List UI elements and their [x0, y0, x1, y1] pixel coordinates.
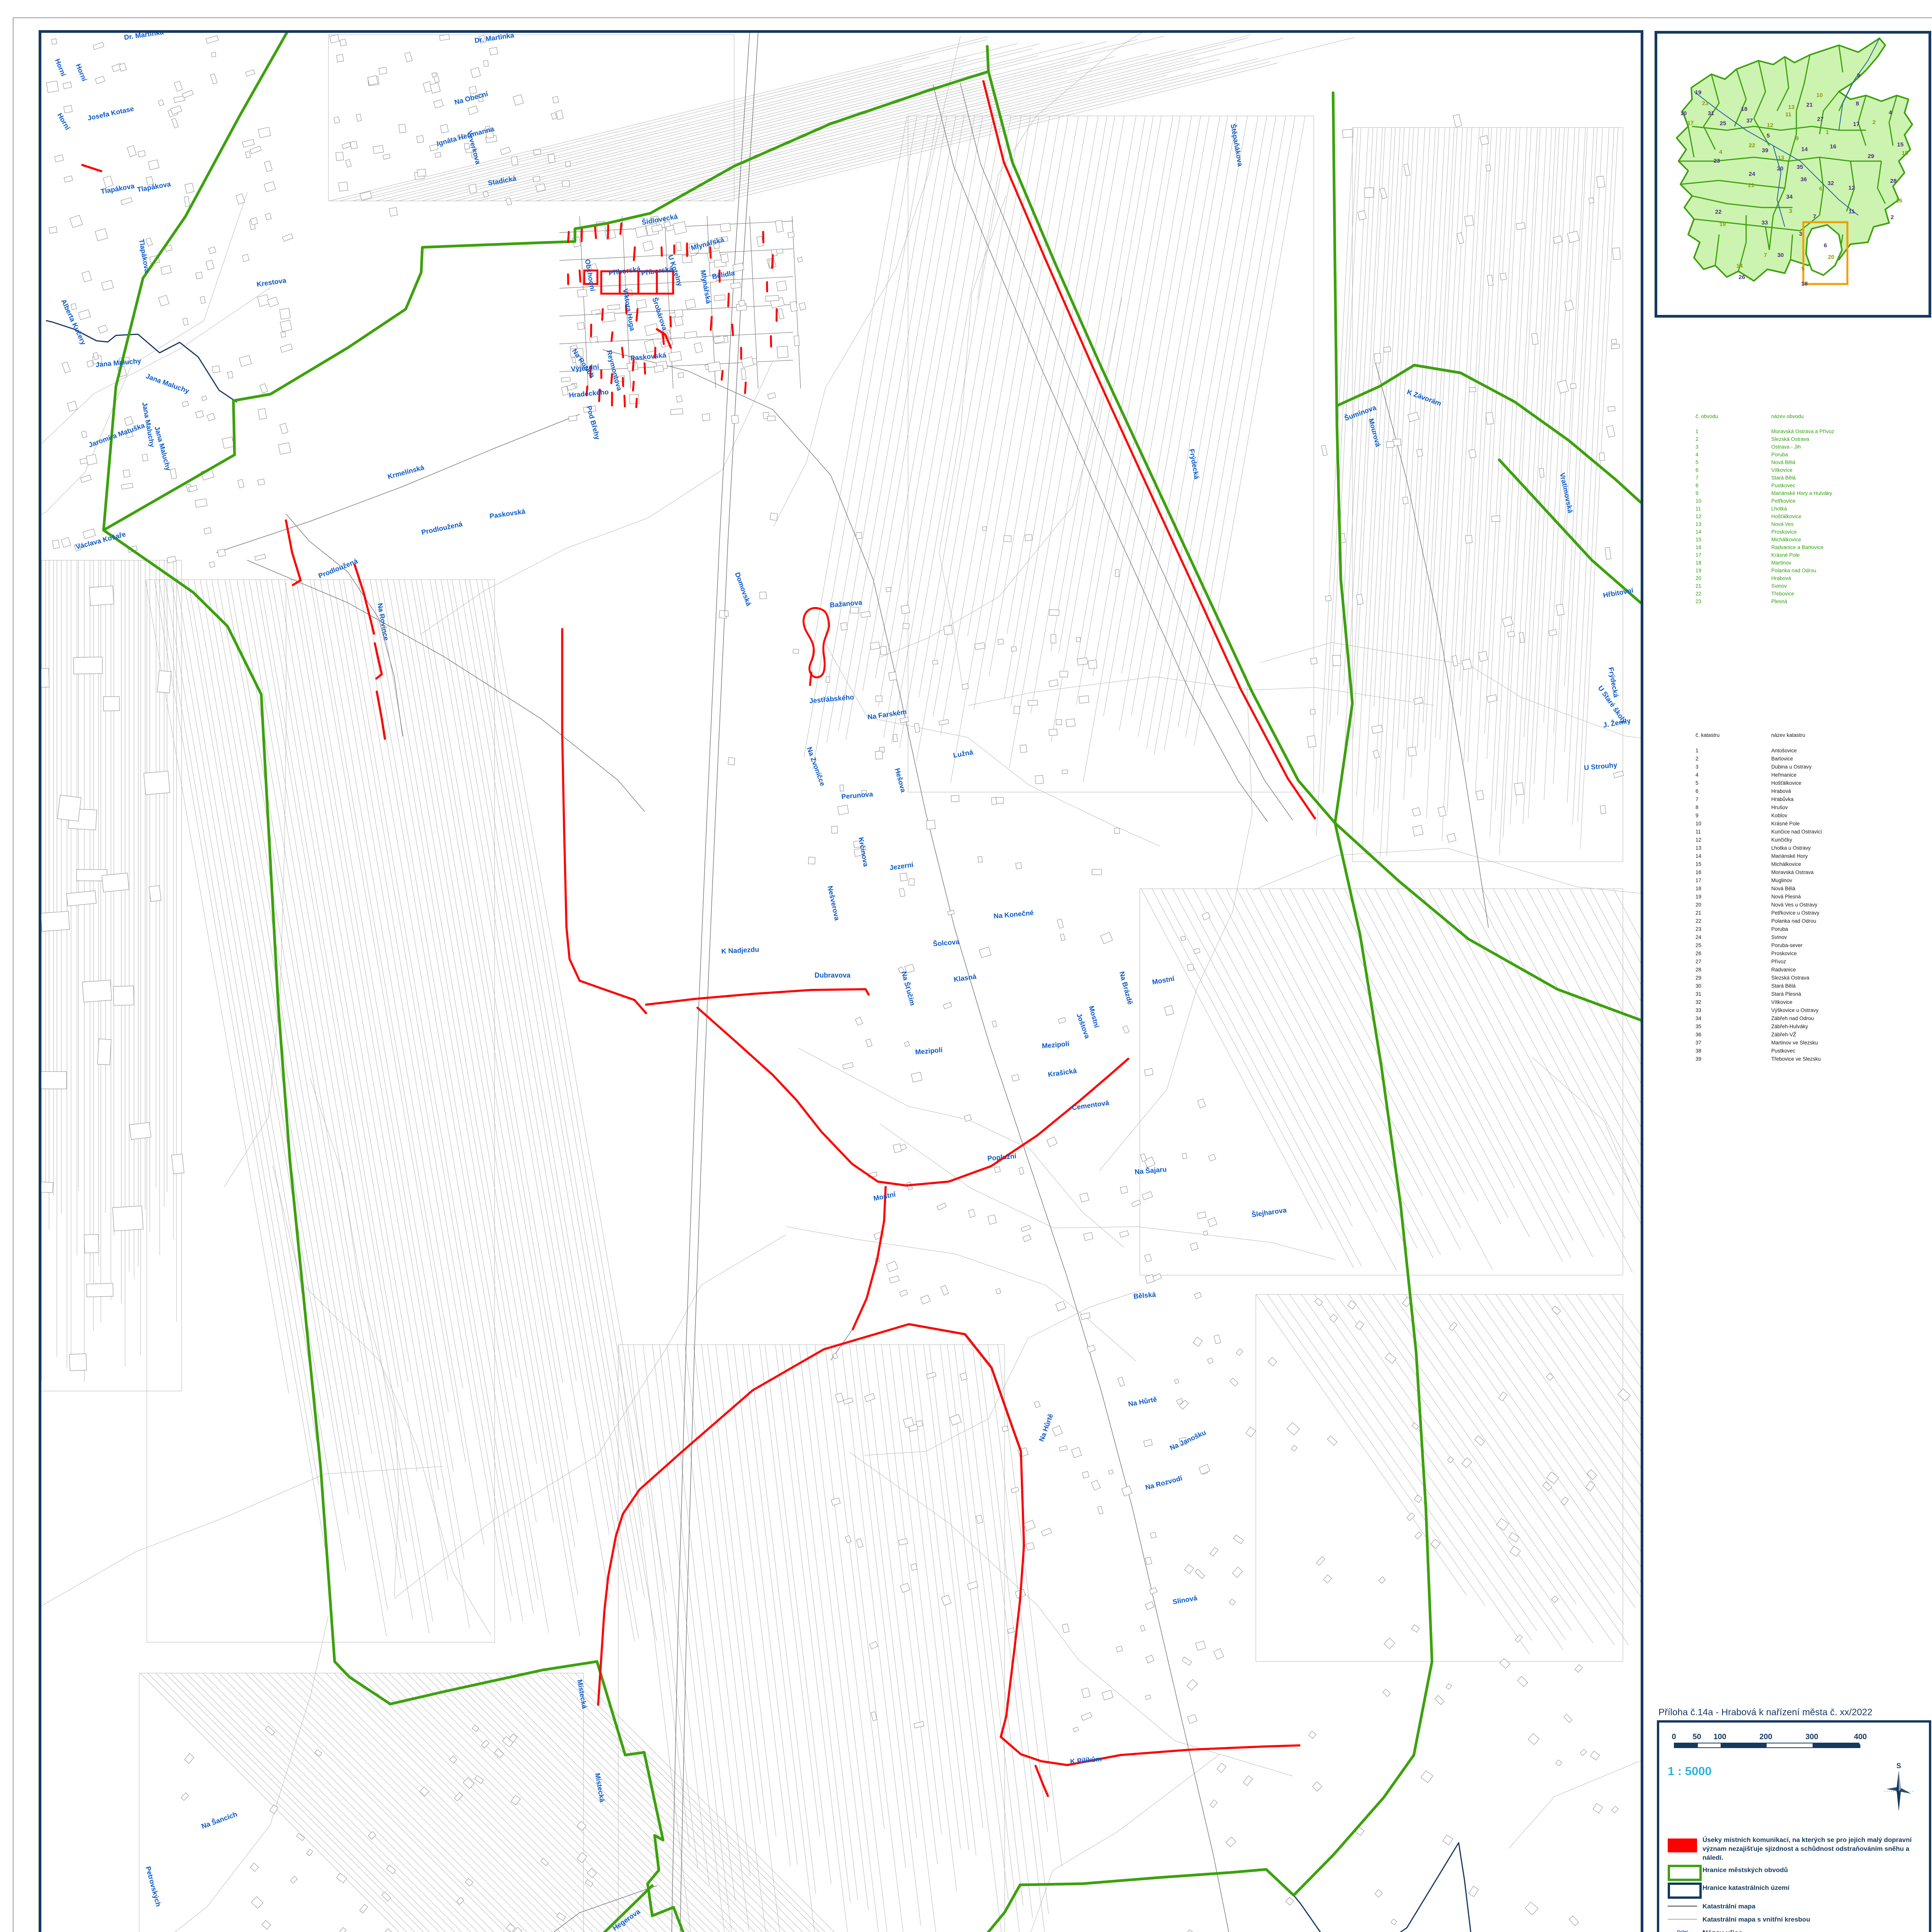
list-item: 22Polanka nad Odrou: [1696, 917, 1822, 925]
inset-district-number: 4: [1719, 149, 1723, 155]
inset-district-number: 17: [1853, 121, 1860, 128]
inset-district-number: 18: [1741, 106, 1748, 112]
street-label: Jana Maluchy: [95, 357, 141, 369]
legend-black-line: [1668, 1906, 1697, 1906]
list-item: 39Třebovice ve Slezsku: [1696, 1055, 1822, 1063]
list-item: 30Stará Bělá: [1696, 982, 1822, 990]
street-label: Prodloužená: [421, 520, 464, 536]
legend-label: Katastrální mapa s vnitřní kresbou: [1702, 1915, 1919, 1924]
inset-district-number: 17: [1687, 120, 1694, 126]
list-item: 19Nová Plesná: [1696, 893, 1822, 901]
list-item: 8Hrušov: [1696, 803, 1822, 811]
list-item: 12Kunčičky: [1696, 836, 1822, 844]
street-label: J. Žemly: [1602, 716, 1631, 729]
list-item: 9Mariánské Hory a Hulváky: [1696, 490, 1834, 497]
list-item: 24Svinov: [1696, 933, 1822, 941]
street-label: Prodloužená: [317, 557, 359, 580]
list-item: 20Hrabová: [1696, 575, 1834, 582]
street-label: Výjezdní: [571, 363, 600, 373]
inset-district-number: 9: [1857, 72, 1860, 79]
street-label: Jana Maluchy: [145, 372, 190, 395]
street-label: Petrovských: [144, 1866, 162, 1908]
legend-item: Úseky místních komunikací, na kterých se…: [1659, 1834, 1926, 1857]
street-label: Příborská: [608, 265, 641, 277]
street-label: Stadická: [487, 174, 517, 187]
list-item: 6Hrabová: [1696, 787, 1822, 795]
street-label: Hešova: [893, 767, 907, 794]
street-label: Mlynářská: [690, 236, 725, 252]
list-item: 15Michálkovice: [1696, 860, 1822, 868]
list-item: 21Petřkovice u Ostravy: [1696, 909, 1822, 917]
sheet-title: Příloha č.14a - Hrabová k nařízení města…: [1658, 1707, 1929, 1718]
street-label: Krestova: [256, 276, 287, 288]
inset-district-number: 21: [1748, 182, 1755, 189]
street-label: Dubravova: [815, 971, 851, 979]
street-label: Paskovská: [630, 351, 667, 362]
list-item: 7Stará Bělá: [1696, 474, 1834, 482]
street-label: Mezipolí: [915, 1046, 943, 1056]
inset-district-number: 33: [1762, 219, 1768, 226]
legend-gray-line: [1668, 1919, 1697, 1920]
list-item: 3Ostrava - Jih: [1696, 443, 1834, 451]
main-map: Dr. MartinkaDr. MartinkaHorníHorníHorníJ…: [39, 30, 1643, 1932]
north-arrow-icon: S: [1883, 1761, 1914, 1811]
list-item: 10Krásné Pole: [1696, 820, 1822, 828]
north-label: S: [1896, 1762, 1901, 1770]
inset-district-number: 34: [1786, 194, 1793, 200]
inset-district-number: 12: [1849, 185, 1855, 191]
street-label: Joštova: [1075, 1012, 1091, 1040]
inset-district-number: 21: [1806, 102, 1813, 108]
inset-district-number: 5: [1801, 265, 1804, 272]
street-label: Paskovská: [489, 507, 526, 520]
list-item: 17Krásné Pole: [1696, 551, 1834, 559]
street-label: Krmelínská: [387, 463, 425, 481]
list-item: 20Nová Ves u Ostravy: [1696, 901, 1822, 909]
inset-district-number: 13: [1778, 155, 1784, 161]
legend-label: Hranice katastrálních území: [1702, 1883, 1919, 1892]
list-item: 2Bartovice: [1696, 755, 1822, 763]
street-label: Na Šťučím: [900, 971, 917, 1007]
street-label: Jezerní: [889, 861, 914, 872]
list-item: 7Hrabůvka: [1696, 795, 1822, 803]
inset-district-number: 14: [1801, 146, 1808, 153]
street-label: Dr. Martinka: [124, 33, 165, 41]
street-label: K Pilíkům: [1070, 1755, 1102, 1765]
inset-district-number: 14: [1736, 263, 1743, 269]
list-item: 13Nová Ves: [1696, 520, 1834, 528]
district-list: č. obvodunázev obvodu 1Moravská Ostrava …: [1696, 413, 1834, 605]
street-label: Jestřábského: [809, 693, 854, 705]
inset-district-number: 25: [1720, 120, 1726, 127]
inset-district-number: 22: [1715, 209, 1722, 215]
street-label: K Nadjezdu: [721, 946, 759, 955]
inset-district-number: 11: [1849, 208, 1855, 215]
street-label: Jana Maluchy: [153, 425, 172, 471]
inset-district-number: 20: [1777, 165, 1784, 172]
inset-district-number: 2: [1872, 119, 1876, 126]
street-label: Slínová: [1172, 1594, 1198, 1606]
list-item: 1Moravská Ostrava a Přívoz: [1696, 428, 1834, 435]
map-canvas: Dr. MartinkaDr. MartinkaHorníHorníHorníJ…: [41, 33, 1641, 1932]
street-label: Horní: [53, 58, 68, 78]
list-item: 3Dubina u Ostravy: [1696, 763, 1822, 771]
inset-district-number: 28: [1890, 178, 1897, 184]
street-label: Reymontova: [605, 349, 624, 392]
list-item: 22Třebovice: [1696, 590, 1834, 598]
list-item: 28Radvanice: [1696, 966, 1822, 974]
list-item: 26Proskovice: [1696, 949, 1822, 957]
street-label: Na Hůrtě: [1037, 1413, 1054, 1442]
list-item: 36Zábřeh-VŽ: [1696, 1031, 1822, 1039]
street-label: Bělidla: [711, 269, 736, 281]
list-item: 27Přívoz: [1696, 957, 1822, 966]
scale-bar: 050100200300400 m: [1674, 1733, 1859, 1750]
legend-item: DolníNázev ulice: [1659, 1927, 1926, 1932]
inset-district-number: 19: [1695, 89, 1702, 96]
street-label: Šlejharova: [1251, 1206, 1287, 1219]
street-label: Perunova: [841, 790, 874, 801]
inset-district-number: 16: [1830, 143, 1837, 150]
inset-district-number: 31: [1708, 110, 1714, 117]
street-label: Mezipolí: [1042, 1040, 1070, 1050]
street-label: Na Konečné: [993, 909, 1034, 920]
street-label: Na Zvoničce: [805, 746, 827, 787]
inset-district-number: 35: [1797, 164, 1803, 170]
list-item: 8Pustkovec: [1696, 482, 1834, 490]
inset-district-number: 27: [1817, 116, 1824, 122]
inset-district-number: 3: [1789, 208, 1792, 214]
inset-district-number: 7: [1813, 213, 1816, 220]
list-item: 19Polanka nad Odrou: [1696, 567, 1834, 575]
scalebar-label: 100: [1713, 1733, 1726, 1742]
inset-district-number: 11: [1785, 111, 1791, 118]
cadastre-list: č. katastrunázev katastru 1Antošovice2Ba…: [1696, 731, 1822, 1063]
list-item: 13Lhotka u Ostravy: [1696, 844, 1822, 852]
list-item: 2Slezská Ostrava: [1696, 435, 1834, 443]
inset-district-number: 5: [1767, 133, 1770, 139]
district-list-col2: název obvodu: [1771, 413, 1804, 419]
list-item: 37Martinov ve Slezsku: [1696, 1039, 1822, 1047]
inset-district-number: 3: [1799, 231, 1802, 237]
scalebar-label: 300: [1805, 1733, 1818, 1742]
list-item: 34Zábřeh nad Odrou: [1696, 1014, 1822, 1022]
inset-district-number: 4: [1889, 109, 1892, 116]
street-label: Nešverova: [826, 885, 841, 922]
street-label: Poplužní: [987, 1152, 1017, 1162]
list-item: 16Moravská Ostrava: [1696, 868, 1822, 876]
street-label: Na Šancích: [200, 1810, 238, 1830]
list-item: 15Michálkovice: [1696, 536, 1834, 544]
inset-district-number: 13: [1788, 104, 1795, 111]
legend-label: Hranice městských obvodů: [1702, 1866, 1919, 1874]
list-item: 11Kunčice nad Ostravicí: [1696, 828, 1822, 836]
street-label: Domovská: [733, 571, 753, 607]
inset-district-number: 16: [1896, 197, 1903, 204]
inset-district-number: 37: [1747, 117, 1753, 124]
cadastre-list-col2: název katastru: [1771, 732, 1805, 738]
list-item: 18Martinov: [1696, 559, 1834, 567]
list-item: 17Muglinov: [1696, 876, 1822, 884]
list-item: 14Mariánské Hory: [1696, 852, 1822, 860]
inset-district-number: 6: [1819, 185, 1822, 192]
street-label: K Závorám: [1406, 388, 1442, 408]
street-label: Jaromíra Matuška: [88, 421, 146, 449]
street-label: Mostní: [1151, 975, 1175, 986]
street-label: Na Janošku: [1168, 1429, 1207, 1452]
list-item: 21Svinov: [1696, 582, 1834, 590]
street-label: Klasná: [953, 973, 977, 983]
street-label: Na Hůrtě: [1128, 1395, 1157, 1408]
inset-district-number: 9: [1796, 135, 1799, 142]
legend-navy-box: [1668, 1883, 1702, 1899]
inset-district-number: 32: [1828, 180, 1834, 187]
legend-item: Katastrální mapa: [1659, 1900, 1926, 1913]
list-item: 32Vítkovice: [1696, 998, 1822, 1006]
inset-district-number: 26: [1739, 274, 1745, 281]
street-label: Místecká: [594, 1772, 606, 1803]
inset-district-number: 15: [1902, 150, 1908, 156]
title-block: 050100200300400 m 1 : 5000 S Úseky místn…: [1657, 1720, 1931, 1932]
list-item: 31Stará Plesná: [1696, 990, 1822, 998]
inset-overview-map: 1910172331251837125223913112110279817241…: [1655, 31, 1931, 318]
inset-district-number: 22: [1749, 142, 1755, 149]
list-item: 4Poruba: [1696, 451, 1834, 459]
inset-district-number: 7: [1764, 252, 1767, 259]
street-label: Josefa Kotase: [87, 105, 135, 122]
list-item: 4Heřmanice: [1696, 771, 1822, 779]
scalebar-label: 0: [1672, 1733, 1676, 1742]
list-item: 9Koblov: [1696, 811, 1822, 820]
list-item: 33Výškovice u Ostravy: [1696, 1006, 1822, 1014]
inset-district-number: 1: [1826, 129, 1829, 136]
legend-label: Úseky místních komunikací, na kterých se…: [1702, 1835, 1919, 1862]
list-item: 5Hošťálkovice: [1696, 779, 1822, 787]
legend-item: Hranice městských obvodů: [1659, 1864, 1926, 1882]
scale-text: 1 : 5000: [1668, 1764, 1712, 1778]
legend-item: Hranice katastrálních území: [1659, 1882, 1926, 1900]
list-item: 38Pustkovec: [1696, 1047, 1822, 1055]
list-item: 5Nová Bělá: [1696, 459, 1834, 466]
street-label: Mostní: [1087, 1005, 1101, 1029]
list-item: 35Zábřeh-Hulváky: [1696, 1022, 1822, 1031]
street-label: Hradeckého: [569, 388, 609, 399]
inset-district-number: 10: [1680, 110, 1687, 117]
legend-item: Katastrální mapa s vnitřní kresbou: [1659, 1913, 1926, 1927]
street-label: Horní: [56, 112, 72, 132]
list-item: 1Antošovice: [1696, 747, 1822, 755]
street-label: Na Brázdě: [1118, 971, 1134, 1005]
street-label: Na Rozvodí: [1145, 1474, 1184, 1492]
inset-district-number: 36: [1801, 176, 1807, 183]
scalebar-label: 50: [1692, 1733, 1701, 1742]
list-item: 23Poruba: [1696, 925, 1822, 933]
inset-district-number: 6: [1824, 242, 1827, 249]
street-label: Šolcova: [933, 937, 961, 948]
inset-district-number: 30: [1777, 252, 1784, 259]
inset-district-number: 12: [1767, 122, 1774, 129]
inset-district-number: 24: [1749, 171, 1755, 177]
inset-district-number: 29: [1868, 153, 1874, 160]
inset-district-number: 2: [1891, 214, 1894, 221]
inset-district-number: 19: [1719, 221, 1726, 228]
list-item: 29Slezská Ostrava: [1696, 974, 1822, 982]
list-item: 18Nová Bělá: [1696, 884, 1822, 893]
cadastre-list-col1: č. katastru: [1696, 731, 1771, 739]
scalebar-label: 200: [1759, 1733, 1772, 1742]
legend-street-sample: Dolní: [1668, 1930, 1697, 1932]
district-list-col1: č. obvodu: [1696, 413, 1771, 420]
street-label: Místecká: [576, 1679, 588, 1709]
inset-district-number: 23: [1714, 158, 1720, 164]
list-item: 23Plesná: [1696, 598, 1834, 605]
list-item: 12Hošťálkovice: [1696, 513, 1834, 520]
street-label: Na Šajaru: [1134, 1165, 1167, 1176]
street-label: Pod Břehy: [585, 405, 602, 440]
street-label: Dr. Martinka: [474, 33, 515, 44]
legend-green-box: [1668, 1865, 1702, 1881]
street-label: U Strouhy: [1584, 761, 1617, 772]
list-item: 16Radvanice a Bartovice: [1696, 544, 1834, 551]
list-item: 14Proskovice: [1696, 528, 1834, 536]
inset-district-number: 20: [1828, 254, 1835, 260]
inset-district-number: 18: [1801, 281, 1808, 287]
street-label: Bělská: [1133, 1291, 1157, 1300]
street-label: Horní: [74, 63, 88, 83]
list-item: 11Lhotka: [1696, 505, 1834, 513]
legend-red-swatch: [1668, 1838, 1697, 1852]
inset-district-number: 23: [1702, 100, 1709, 107]
street-label: Hřbitovní: [1602, 586, 1634, 599]
street-label: Vratimovská: [1558, 472, 1575, 514]
street-label: Tlapákova: [136, 180, 172, 194]
inset-district-number: 15: [1897, 141, 1904, 148]
legend-label: Katastrální mapa: [1702, 1902, 1919, 1911]
inset-district-number: 10: [1816, 92, 1823, 99]
list-item: 25Poruba-sever: [1696, 941, 1822, 949]
street-label: Krašická: [1048, 1067, 1078, 1078]
street-label: Lužná: [952, 748, 974, 759]
inset-district-number: 39: [1762, 147, 1769, 154]
inset-district-number: 8: [1856, 100, 1859, 107]
list-item: 6Vítkovice: [1696, 466, 1834, 474]
list-item: 10Petřkovice: [1696, 497, 1834, 505]
legend-label: Název ulice: [1702, 1929, 1919, 1932]
street-label: Cementová: [1071, 1099, 1110, 1112]
